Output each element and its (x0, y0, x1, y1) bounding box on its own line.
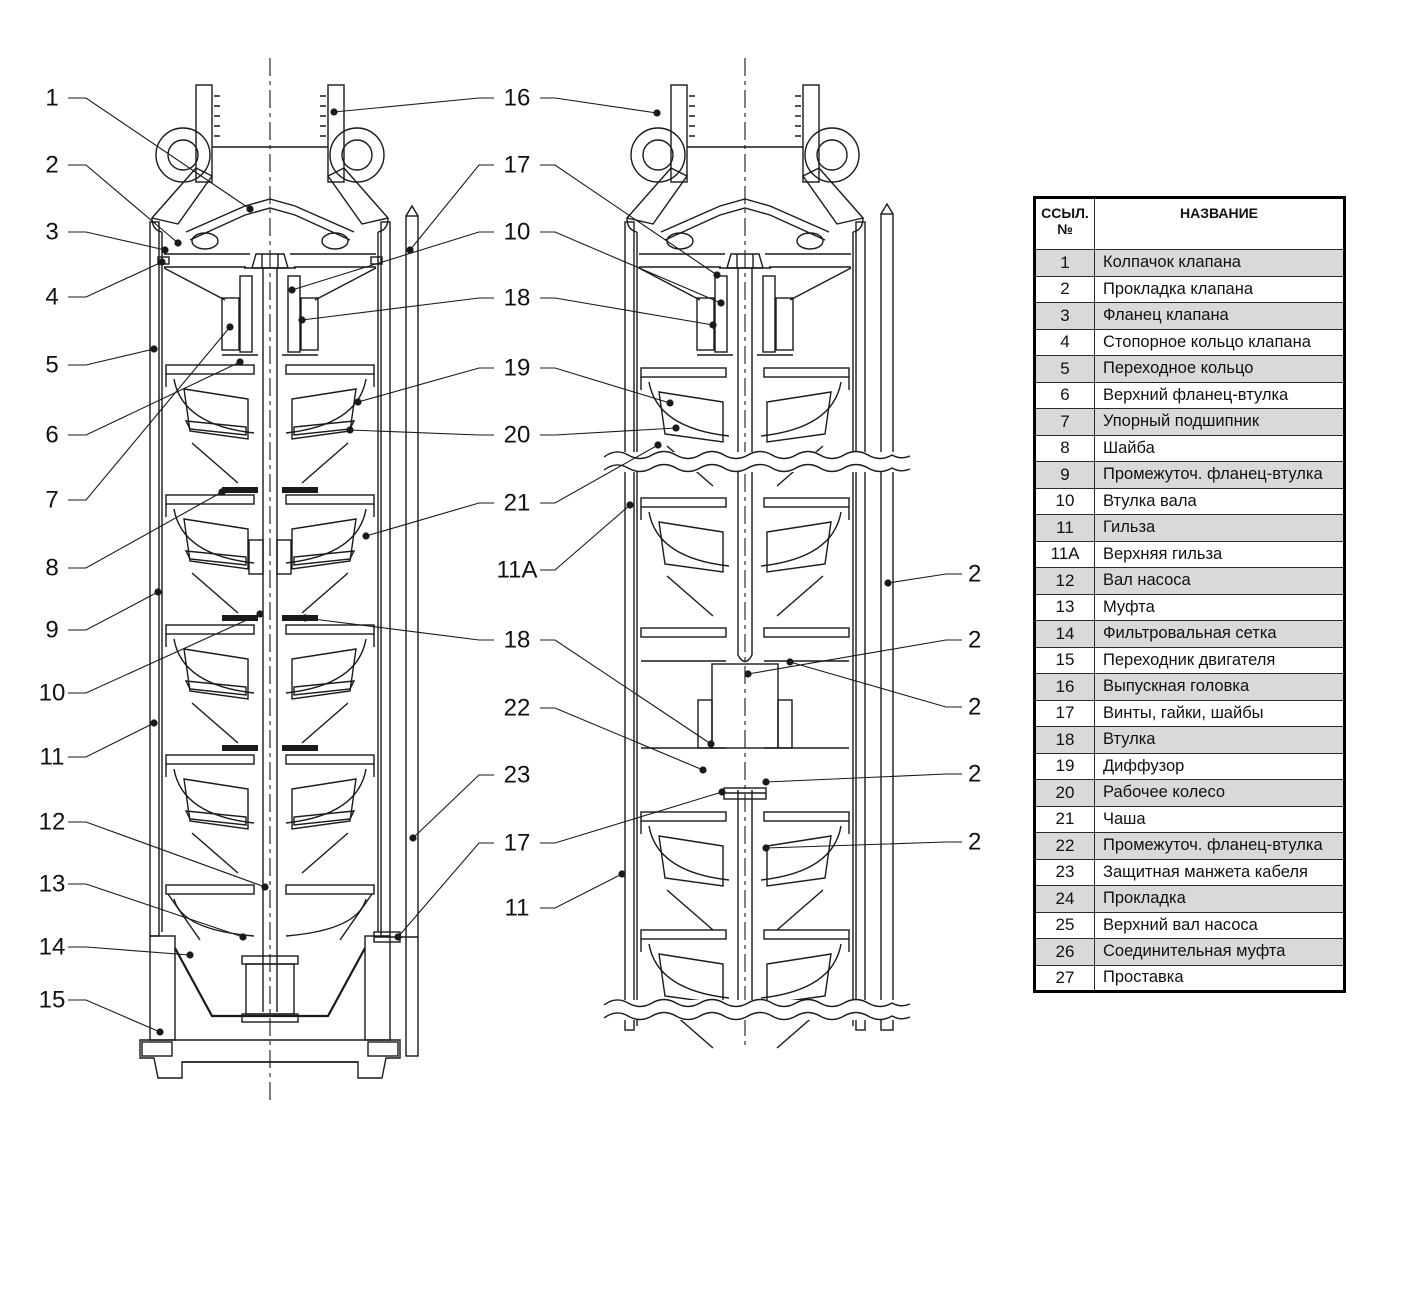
table-row: 11Гильза (1035, 515, 1345, 542)
part-name: Проставка (1095, 965, 1345, 992)
part-name: Промежуточ. фланец-втулка (1095, 833, 1345, 860)
part-name: Верхний фланец-втулка (1095, 382, 1345, 409)
callout-number: 18 (504, 285, 531, 312)
leader-line (68, 349, 154, 365)
leader-dot (226, 323, 233, 330)
table-row: 1Колпачок клапана (1035, 250, 1345, 277)
part-name: Переходное кольцо (1095, 356, 1345, 383)
part-name: Диффузор (1095, 753, 1345, 780)
leader-line (766, 774, 962, 782)
callout-layer: 1234567891011121314151617101819202111А18… (39, 85, 982, 1036)
table-row: 11АВерхняя гильза (1035, 541, 1345, 568)
table-row: 9Промежуточ. фланец-втулка (1035, 462, 1345, 489)
leader-dot (161, 246, 168, 253)
callout-number: 15 (39, 987, 66, 1014)
part-ref: 22 (1035, 833, 1095, 860)
leader-dot (298, 316, 305, 323)
table-row: 20Рабочее колесо (1035, 780, 1345, 807)
table-row: 13Муфта (1035, 594, 1345, 621)
leader-line (68, 592, 158, 630)
table-row: 2Прокладка клапана (1035, 276, 1345, 303)
table-row: 10Втулка вала (1035, 488, 1345, 515)
callout-number: 10 (39, 680, 66, 707)
part-name: Винты, гайки, шайбы (1095, 700, 1345, 727)
leader-dot (346, 426, 353, 433)
table-row: 5Переходное кольцо (1035, 356, 1345, 383)
table-row: 6Верхний фланец-втулка (1035, 382, 1345, 409)
part-name: Муфта (1095, 594, 1345, 621)
leader-dot (261, 883, 268, 890)
part-ref: 2 (1035, 276, 1095, 303)
part-name: Втулка вала (1095, 488, 1345, 515)
leader-line (790, 662, 962, 707)
part-name: Выпускная головка (1095, 674, 1345, 701)
part-ref: 24 (1035, 886, 1095, 913)
callout-number: 19 (504, 355, 531, 382)
leader-line (334, 98, 494, 112)
part-ref: 18 (1035, 727, 1095, 754)
callout-number: 20 (504, 422, 531, 449)
thrust-bearing-assembly (164, 268, 376, 355)
part-ref: 12 (1035, 568, 1095, 595)
part-ref: 25 (1035, 912, 1095, 939)
table-row: 15Переходник двигателя (1035, 647, 1345, 674)
leader-dot (786, 658, 793, 665)
part-ref: 3 (1035, 303, 1095, 330)
leader-dot (301, 614, 308, 621)
leader-dot (884, 579, 891, 586)
leader-dot (717, 299, 724, 306)
leader-dot (666, 399, 673, 406)
leader-dot (653, 109, 660, 116)
part-ref: 8 (1035, 435, 1095, 462)
leader-dot (236, 358, 243, 365)
part-name: Упорный подшипник (1095, 409, 1345, 436)
break-line-upper (604, 452, 910, 473)
callout-number: 17 (504, 152, 531, 179)
part-ref: 10 (1035, 488, 1095, 515)
callout-number: 7 (45, 487, 58, 514)
leader-line (68, 614, 260, 693)
callout-number: 5 (45, 352, 58, 379)
leader-dot (186, 951, 193, 958)
leader-line (540, 792, 722, 843)
ref-header-line1: ССЫЛ. (1041, 205, 1089, 221)
leader-line (410, 165, 494, 250)
part-name: Вал насоса (1095, 568, 1345, 595)
callout-number: 22 (504, 695, 531, 722)
part-ref: 13 (1035, 594, 1095, 621)
callout-number: 23 (504, 762, 531, 789)
table-row: 22Промежуточ. фланец-втулка (1035, 833, 1345, 860)
callout-number: 11А (497, 557, 538, 584)
part-name: Чаша (1095, 806, 1345, 833)
leader-dot (394, 933, 401, 940)
part-ref: 21 (1035, 806, 1095, 833)
callout-number-clipped: 2 (968, 694, 981, 721)
leader-dot (218, 488, 225, 495)
parts-table-body: 1Колпачок клапана2Прокладка клапана3Флан… (1035, 250, 1345, 992)
callout-number: 3 (45, 219, 58, 246)
part-name: Верхняя гильза (1095, 541, 1345, 568)
leader-dot (156, 1028, 163, 1035)
part-name: Гильза (1095, 515, 1345, 542)
ref-column-header: ССЫЛ. № (1035, 198, 1095, 250)
part-ref: 26 (1035, 939, 1095, 966)
part-ref: 11 (1035, 515, 1095, 542)
callout-number: 2 (45, 152, 58, 179)
leader-dot (150, 719, 157, 726)
part-ref: 23 (1035, 859, 1095, 886)
parts-table: ССЫЛ. № НАЗВАНИЕ 1Колпачок клапана2Прокл… (1033, 196, 1346, 993)
leader-line (413, 775, 494, 838)
callout-number-clipped: 2 (968, 627, 981, 654)
leader-dot (256, 610, 263, 617)
leader-dot (154, 588, 161, 595)
leader-line (68, 947, 190, 955)
table-row: 27Проставка (1035, 965, 1345, 992)
leader-dot (618, 870, 625, 877)
part-ref: 27 (1035, 965, 1095, 992)
part-name: Переходник двигателя (1095, 647, 1345, 674)
part-name: Защитная манжета кабеля (1095, 859, 1345, 886)
leader-line (540, 874, 622, 908)
leader-dot (239, 933, 246, 940)
leader-dot (158, 258, 165, 265)
leader-line (540, 298, 713, 325)
callout-number: 12 (39, 809, 66, 836)
leader-dot (362, 532, 369, 539)
table-row: 21Чаша (1035, 806, 1345, 833)
part-ref: 16 (1035, 674, 1095, 701)
table-row: 4Стопорное кольцо клапана (1035, 329, 1345, 356)
leader-line (888, 574, 962, 583)
break-line-lower (604, 1000, 910, 1021)
callout-number-clipped: 2 (968, 561, 981, 588)
callout-number: 14 (39, 934, 66, 961)
table-row: 26Соединительная муфта (1035, 939, 1345, 966)
leader-line (540, 165, 717, 275)
leader-dot (672, 424, 679, 431)
leader-dot (354, 398, 361, 405)
callout-number: 11 (40, 744, 65, 771)
part-name: Колпачок клапана (1095, 250, 1345, 277)
leader-line (68, 98, 250, 209)
callout-number-clipped: 2 (968, 761, 981, 788)
part-ref: 4 (1035, 329, 1095, 356)
right-pump-cutaway (604, 58, 910, 1048)
part-name: Фланец клапана (1095, 303, 1345, 330)
leader-dot (709, 321, 716, 328)
callout-number: 18 (504, 627, 531, 654)
leader-dot (744, 670, 751, 677)
leader-line (68, 822, 265, 887)
part-name: Соединительная муфта (1095, 939, 1345, 966)
leader-line (540, 505, 630, 570)
table-row: 3Фланец клапана (1035, 303, 1345, 330)
callout-number: 13 (39, 871, 66, 898)
page: 1234567891011121314151617101819202111А18… (0, 0, 1408, 1304)
callout-number: 17 (504, 830, 531, 857)
leader-dot (246, 205, 253, 212)
part-name: Стопорное кольцо клапана (1095, 329, 1345, 356)
leader-line (68, 262, 162, 297)
leader-line (68, 327, 230, 500)
table-row: 14Фильтровальная сетка (1035, 621, 1345, 648)
callout-number: 1 (45, 85, 58, 112)
leader-line (748, 640, 962, 674)
callout-number-clipped: 2 (968, 829, 981, 856)
part-ref: 14 (1035, 621, 1095, 648)
leader-dot (288, 286, 295, 293)
leader-line (305, 618, 494, 640)
table-row: 7Упорный подшипник (1035, 409, 1345, 436)
leader-dot (718, 788, 725, 795)
callout-number: 11 (505, 895, 530, 922)
part-ref: 17 (1035, 700, 1095, 727)
part-ref: 20 (1035, 780, 1095, 807)
table-header-row: ССЫЛ. № НАЗВАНИЕ (1035, 198, 1345, 250)
leader-line (350, 430, 494, 435)
part-name: Рабочее колесо (1095, 780, 1345, 807)
leader-line (540, 428, 676, 435)
table-row: 16Выпускная головка (1035, 674, 1345, 701)
left-pump-cutaway (140, 58, 418, 1100)
leader-line (68, 884, 243, 937)
leader-dot (762, 844, 769, 851)
table-row: 18Втулка (1035, 727, 1345, 754)
leader-line (68, 1000, 160, 1032)
table-row: 12Вал насоса (1035, 568, 1345, 595)
leader-line (540, 98, 657, 113)
leader-line (540, 708, 703, 770)
cable-guard (881, 204, 893, 1030)
part-ref: 6 (1035, 382, 1095, 409)
leader-line (398, 843, 494, 937)
leader-dot (626, 501, 633, 508)
leader-line (302, 298, 494, 320)
leader-dot (174, 239, 181, 246)
part-ref: 1 (1035, 250, 1095, 277)
table-row: 17Винты, гайки, шайбы (1035, 700, 1345, 727)
leader-line (366, 503, 494, 536)
leader-dot (713, 271, 720, 278)
part-ref: 19 (1035, 753, 1095, 780)
callout-number: 16 (504, 85, 531, 112)
leader-dot (150, 345, 157, 352)
callout-number: 4 (45, 284, 58, 311)
callout-number: 9 (45, 617, 58, 644)
part-name: Прокладка (1095, 886, 1345, 913)
callout-number: 6 (45, 422, 58, 449)
part-name: Втулка (1095, 727, 1345, 754)
leader-dot (654, 441, 661, 448)
callout-number: 10 (504, 219, 531, 246)
motor-adapter (150, 932, 418, 1040)
leader-dot (409, 834, 416, 841)
callout-number: 21 (504, 490, 531, 517)
part-ref: 5 (1035, 356, 1095, 383)
leader-dot (699, 766, 706, 773)
part-name: Фильтровальная сетка (1095, 621, 1345, 648)
leader-dot (707, 740, 714, 747)
table-row: 24Прокладка (1035, 886, 1345, 913)
part-name: Шайба (1095, 435, 1345, 462)
leader-line (766, 842, 962, 848)
leader-dot (330, 108, 337, 115)
part-ref: 15 (1035, 647, 1095, 674)
part-name: Верхний вал насоса (1095, 912, 1345, 939)
table-row: 23Защитная манжета кабеля (1035, 859, 1345, 886)
table-row: 25Верхний вал насоса (1035, 912, 1345, 939)
part-name: Прокладка клапана (1095, 276, 1345, 303)
leader-line (540, 368, 670, 403)
ref-header-line2: № (1057, 221, 1073, 237)
part-ref: 11А (1035, 541, 1095, 568)
leader-dot (762, 778, 769, 785)
part-ref: 9 (1035, 462, 1095, 489)
table-row: 19Диффузор (1035, 753, 1345, 780)
part-name: Промежуточ. фланец-втулка (1095, 462, 1345, 489)
name-column-header: НАЗВАНИЕ (1095, 198, 1345, 250)
part-ref: 7 (1035, 409, 1095, 436)
leader-line (68, 723, 154, 757)
callout-number: 8 (45, 555, 58, 582)
table-row: 8Шайба (1035, 435, 1345, 462)
